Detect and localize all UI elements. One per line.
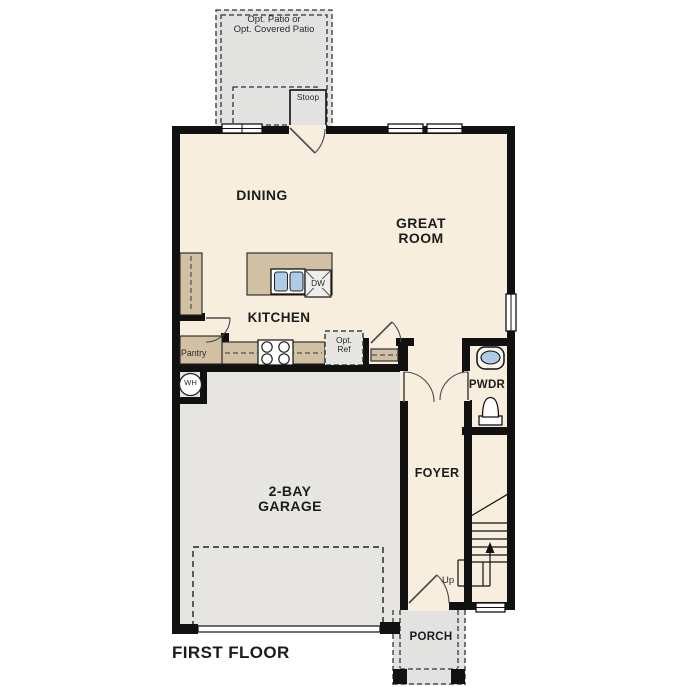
garage-label: 2-BAY GARAGE bbox=[258, 484, 322, 514]
wall-niche-right bbox=[398, 338, 408, 372]
water-heater-label: WH bbox=[184, 379, 197, 387]
garage-overhead-door bbox=[198, 626, 380, 632]
porch-label: PORCH bbox=[409, 631, 452, 643]
patio-label: Opt. Patio or Opt. Covered Patio bbox=[234, 15, 315, 36]
great-room-label: GREAT ROOM bbox=[396, 216, 446, 246]
wall-right bbox=[507, 126, 515, 610]
porch-post-left bbox=[393, 669, 407, 684]
dining-label: DINING bbox=[236, 188, 287, 203]
stoop-label: Stoop bbox=[297, 93, 319, 102]
stairs-up-label: Up bbox=[442, 576, 454, 586]
first-floor-plan: Opt. Patio or Opt. Covered Patio Stoop D… bbox=[0, 0, 687, 687]
porch-post-right bbox=[451, 669, 465, 684]
sink-basin-right bbox=[290, 272, 303, 291]
floor-title: FIRST FLOOR bbox=[172, 644, 290, 662]
wall-stair bbox=[464, 400, 472, 603]
pwdr-sink-icon bbox=[477, 347, 504, 369]
pwdr-label: PWDR bbox=[469, 379, 505, 391]
opt-ref-label: Opt. Ref bbox=[336, 336, 352, 354]
wall-garage-bottom-left bbox=[172, 624, 198, 634]
wall-pwdr-left-upper bbox=[462, 338, 470, 372]
kitchen-label: KITCHEN bbox=[248, 311, 311, 326]
wall-wh-bottom bbox=[172, 397, 207, 404]
wall-left bbox=[172, 126, 180, 634]
pantry-label: Pantry bbox=[181, 349, 206, 359]
wall-garage-bottom-right bbox=[380, 622, 400, 634]
range-stove-icon bbox=[258, 340, 293, 365]
foyer-label: FOYER bbox=[415, 467, 460, 481]
dishwasher-label: DW bbox=[310, 279, 326, 288]
sink-basin-left bbox=[275, 272, 288, 291]
